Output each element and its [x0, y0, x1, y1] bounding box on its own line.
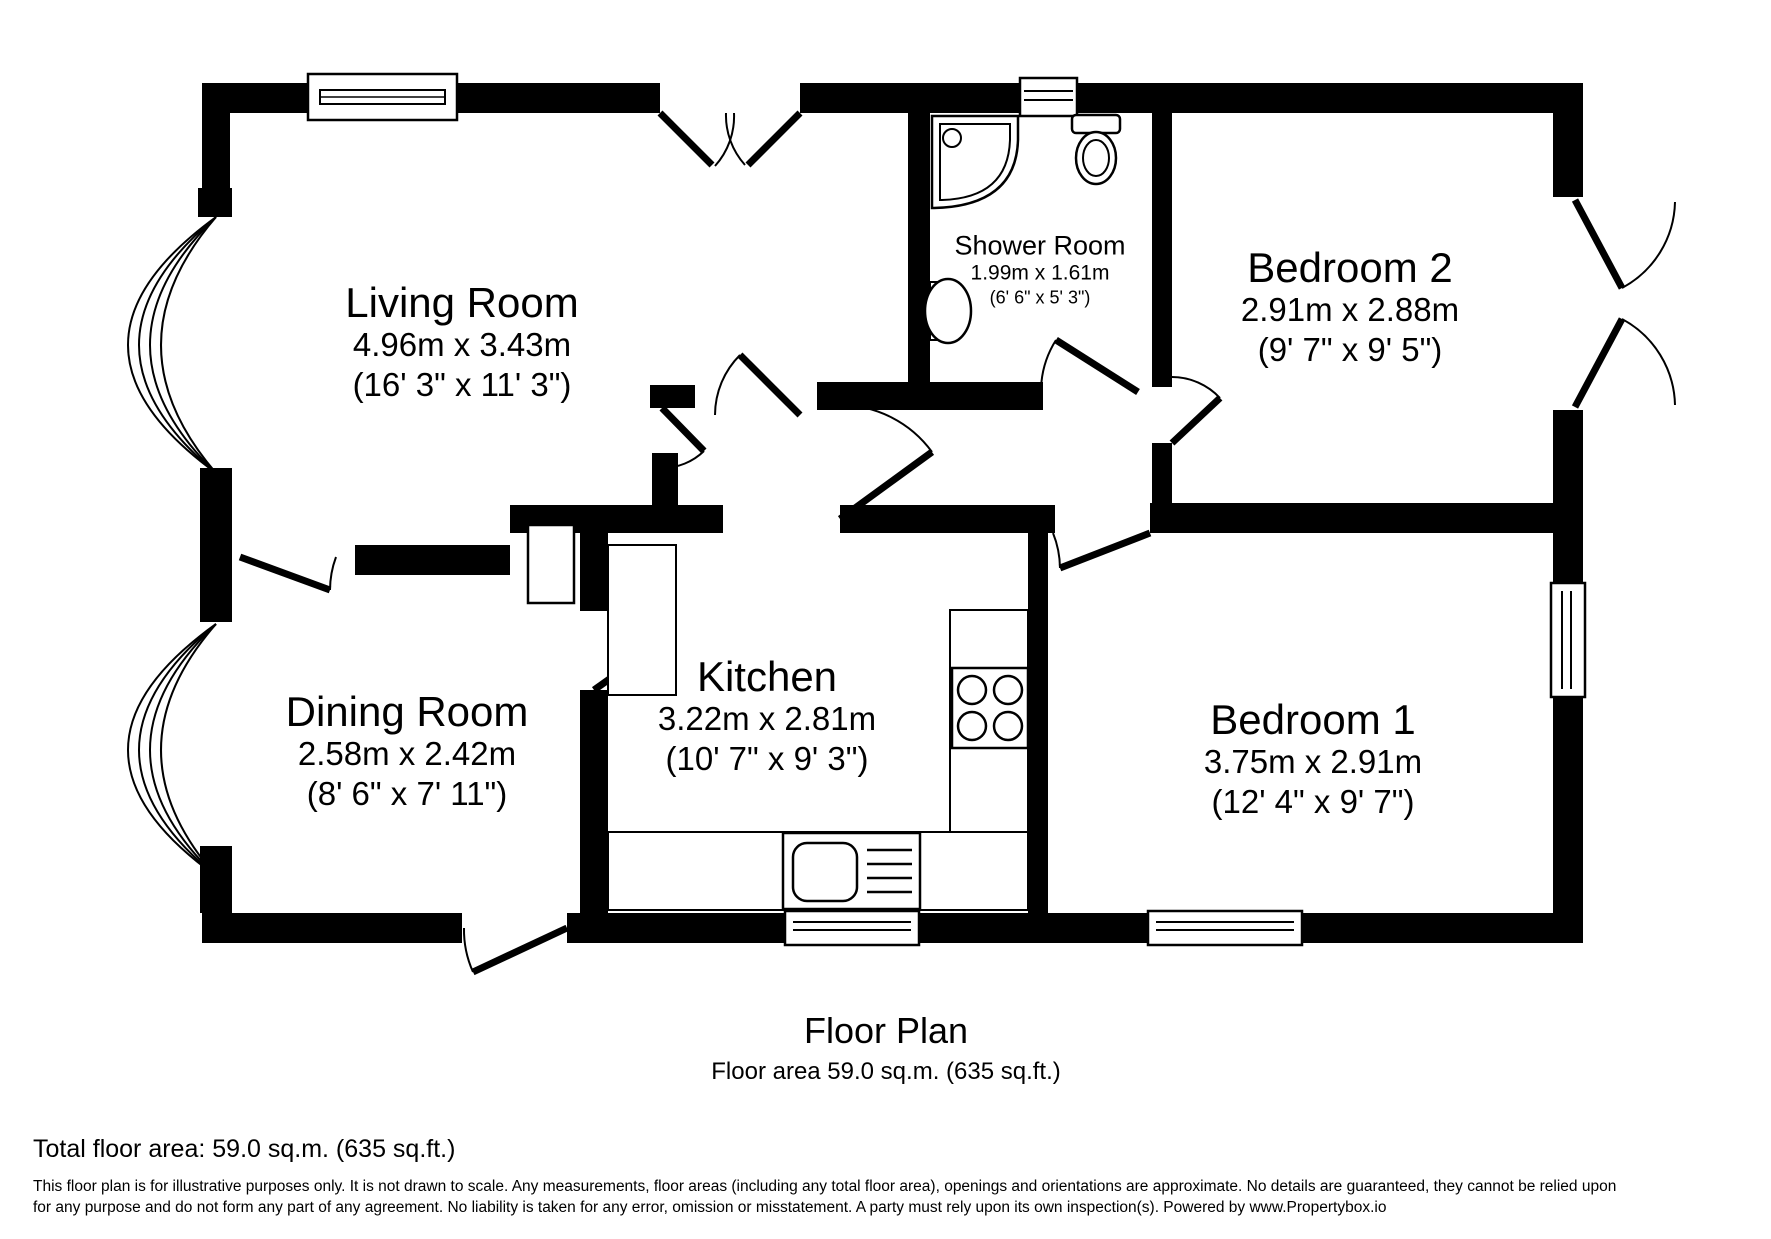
window-bedroom1-right: [1551, 583, 1585, 697]
window-living-room-top: [308, 74, 457, 120]
bay-window-dining-room: [128, 624, 216, 876]
room-label-kitchen: Kitchen 3.22m x 2.81m (10' 7" x 9' 3"): [658, 655, 876, 779]
room-name: Living Room: [345, 281, 578, 325]
total-floor-area: Total floor area: 59.0 sq.m. (635 sq.ft.…: [33, 1134, 455, 1164]
room-name: Bedroom 1: [1204, 698, 1422, 742]
room-name: Bedroom 2: [1241, 246, 1459, 290]
room-dim-metric: 3.22m x 2.81m: [658, 699, 876, 739]
room-label-shower-room: Shower Room 1.99m x 1.61m (6' 6" x 5' 3"…: [954, 231, 1125, 310]
room-name: Kitchen: [658, 655, 876, 699]
disclaimer-text: This floor plan is for illustrative purp…: [33, 1176, 1616, 1218]
sink-icon: [783, 833, 920, 909]
room-dim-imperial: (16' 3" x 11' 3"): [345, 365, 578, 405]
window-bedroom1-bottom: [1148, 911, 1302, 945]
toilet-icon: [1072, 115, 1120, 184]
room-dim-imperial: (9' 7" x 9' 5"): [1241, 330, 1459, 370]
door-bedroom-1: [1053, 533, 1150, 568]
door-dining-entrance: [464, 928, 567, 972]
room-dim-imperial: (6' 6" x 5' 3"): [954, 286, 1125, 310]
room-dim-metric: 3.75m x 2.91m: [1204, 742, 1422, 782]
door-shower-room: [1041, 340, 1138, 392]
room-dim-imperial: (8' 6" x 7' 11"): [286, 774, 529, 814]
door-living-to-dining: [240, 557, 336, 590]
plan-title: Floor Plan: [804, 1012, 968, 1050]
hob-icon: [952, 668, 1028, 748]
room-dim-imperial: (12' 4" x 9' 7"): [1204, 782, 1422, 822]
disclaimer-line-1: This floor plan is for illustrative purp…: [33, 1176, 1616, 1197]
room-name: Dining Room: [286, 690, 529, 734]
door-kitchen-to-hall: [840, 405, 932, 519]
floor-plan-page: Living Room 4.96m x 3.43m (16' 3" x 11' …: [0, 0, 1771, 1239]
disclaimer-line-2: for any purpose and do not form any part…: [33, 1197, 1616, 1218]
room-name: Shower Room: [954, 231, 1125, 261]
room-label-living-room: Living Room 4.96m x 3.43m (16' 3" x 11' …: [345, 281, 578, 405]
plan-floor-area: Floor area 59.0 sq.m. (635 sq.ft.): [711, 1058, 1061, 1086]
window-kitchen-bottom: [785, 911, 919, 945]
floor-plan-drawing: [0, 0, 1771, 980]
shower-tray-icon: [932, 116, 1018, 208]
bay-window-living-room: [128, 217, 216, 473]
door-bedroom-2: [1172, 377, 1220, 443]
room-dim-metric: 1.99m x 1.61m: [954, 261, 1125, 286]
door-living-to-hall: [662, 355, 800, 468]
door-bedroom2-french: [1575, 200, 1675, 407]
room-dim-metric: 2.91m x 2.88m: [1241, 290, 1459, 330]
room-dim-metric: 4.96m x 3.43m: [345, 325, 578, 365]
room-label-dining-room: Dining Room 2.58m x 2.42m (8' 6" x 7' 11…: [286, 690, 529, 814]
room-dim-imperial: (10' 7" x 9' 3"): [658, 739, 876, 779]
room-dim-metric: 2.58m x 2.42m: [286, 734, 529, 774]
room-label-bedroom-2: Bedroom 2 2.91m x 2.88m (9' 7" x 9' 5"): [1241, 246, 1459, 370]
window-shower-room-top: [1020, 78, 1077, 116]
cupboard-unit: [528, 525, 574, 603]
door-front-french: [660, 113, 800, 166]
room-label-bedroom-1: Bedroom 1 3.75m x 2.91m (12' 4" x 9' 7"): [1204, 698, 1422, 822]
